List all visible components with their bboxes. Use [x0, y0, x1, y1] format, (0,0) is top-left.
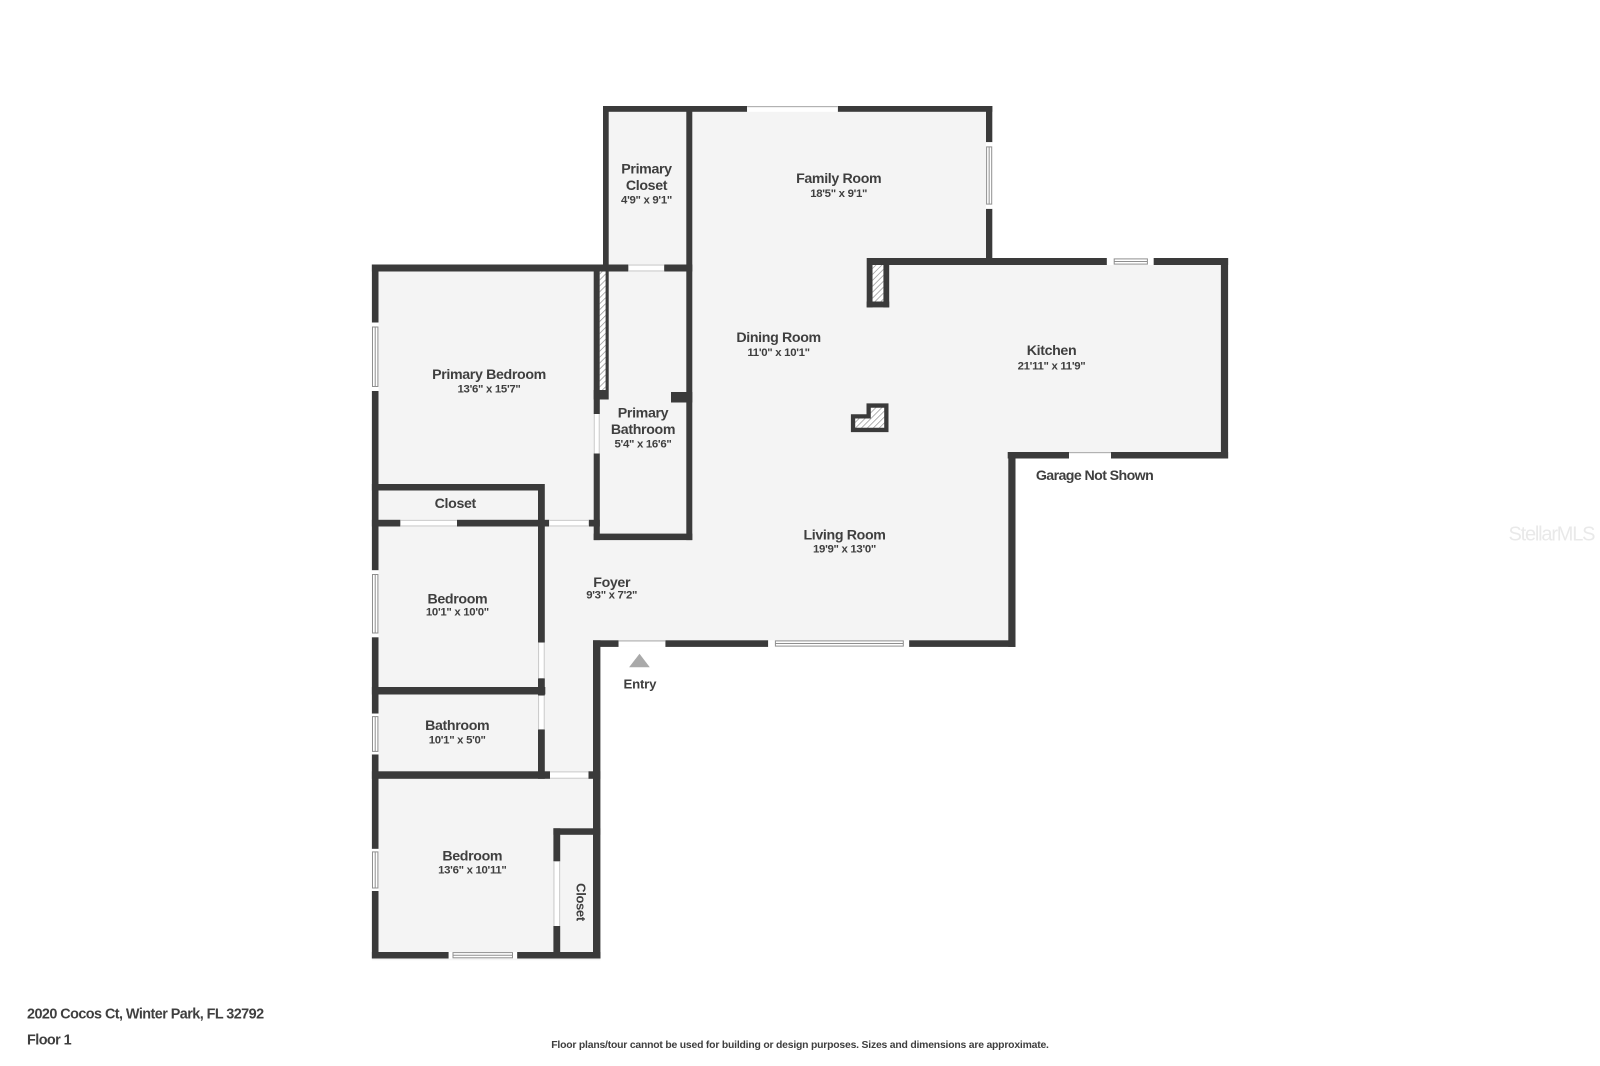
svg-text:9'3" x 7'2": 9'3" x 7'2" — [586, 590, 637, 602]
svg-text:Primary: Primary — [618, 406, 669, 422]
svg-text:Closet: Closet — [435, 496, 477, 512]
svg-text:Closet: Closet — [626, 178, 668, 194]
svg-text:Bedroom: Bedroom — [427, 592, 487, 608]
svg-text:2020 Cocos Ct, Winter Park, FL: 2020 Cocos Ct, Winter Park, FL 32792 — [27, 1007, 264, 1023]
svg-text:13'6" x 10'11": 13'6" x 10'11" — [438, 865, 506, 877]
svg-text:Closet: Closet — [574, 883, 589, 922]
svg-text:10'1" x 10'0": 10'1" x 10'0" — [426, 606, 489, 618]
svg-text:Primary Bedroom: Primary Bedroom — [432, 367, 546, 383]
svg-text:Bathroom: Bathroom — [425, 718, 489, 734]
svg-text:Kitchen: Kitchen — [1027, 343, 1077, 359]
svg-text:Bedroom: Bedroom — [442, 849, 502, 865]
svg-text:4'9" x 9'1": 4'9" x 9'1" — [621, 195, 672, 207]
svg-text:Living Room: Living Room — [803, 528, 885, 544]
svg-text:Garage Not Shown: Garage Not Shown — [1036, 468, 1153, 484]
svg-text:Entry: Entry — [624, 676, 658, 691]
svg-text:13'6" x 15'7": 13'6" x 15'7" — [458, 384, 521, 396]
svg-text:Dining Room: Dining Room — [736, 330, 820, 346]
svg-text:Family Room: Family Room — [796, 171, 881, 187]
svg-text:StellarMLS: StellarMLS — [1509, 524, 1596, 546]
svg-text:5'4" x 16'6": 5'4" x 16'6" — [615, 439, 672, 451]
svg-text:Primary: Primary — [621, 162, 672, 178]
svg-text:Floor plans/tour cannot be use: Floor plans/tour cannot be used for buil… — [551, 1040, 1049, 1051]
svg-text:18'5" x 9'1": 18'5" x 9'1" — [810, 188, 867, 200]
svg-text:10'1" x 5'0": 10'1" x 5'0" — [429, 734, 486, 746]
svg-text:Bathroom: Bathroom — [611, 422, 675, 438]
svg-text:19'9" x 13'0": 19'9" x 13'0" — [813, 543, 876, 555]
svg-text:11'0" x 10'1": 11'0" x 10'1" — [747, 347, 809, 359]
svg-text:Floor 1: Floor 1 — [27, 1032, 72, 1048]
svg-text:21'11" x 11'9": 21'11" x 11'9" — [1018, 361, 1086, 373]
